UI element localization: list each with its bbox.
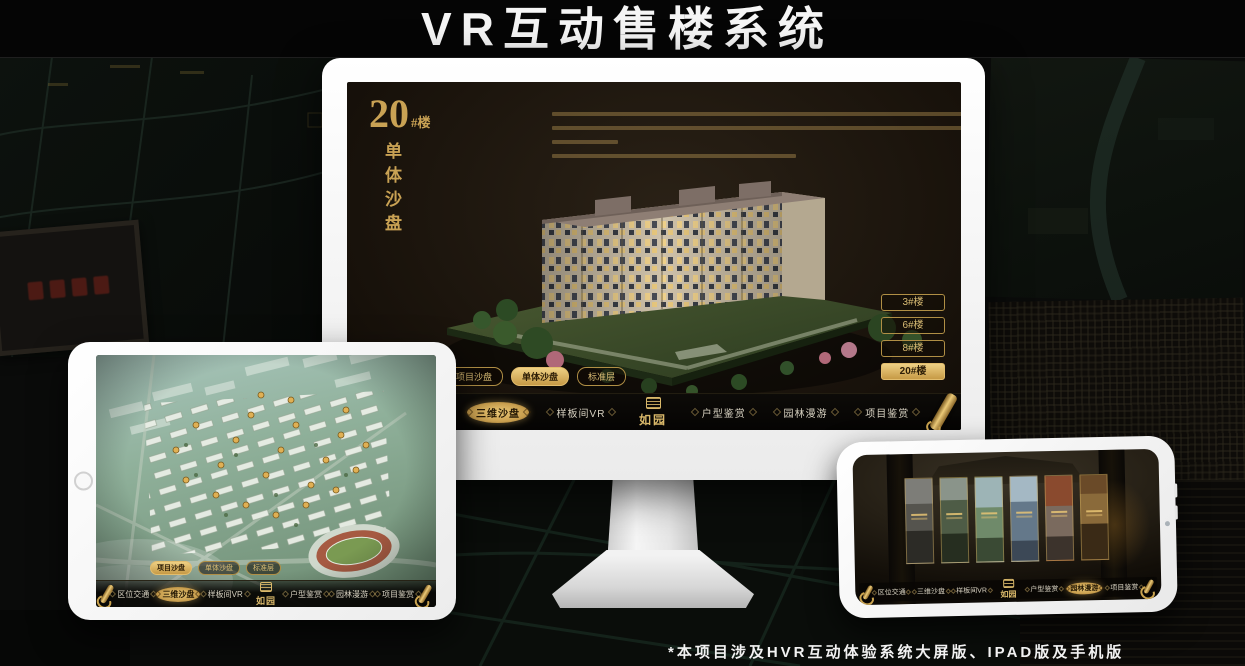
background-plaque [0, 220, 149, 357]
volume-button [1175, 505, 1178, 519]
brand-logo: 如园 [994, 579, 1022, 601]
nav-item[interactable]: 户型鉴赏 [284, 587, 328, 602]
subtab[interactable]: 单体沙盘 [511, 367, 569, 386]
footnote: *本项目涉及HVR互动体验系统大屏版、IPAD版及手机版 [668, 641, 1124, 662]
nav-item[interactable]: 样板间VR [548, 402, 615, 423]
logo-text: 如园 [1000, 589, 1016, 600]
subtab[interactable]: 项目沙盘 [150, 561, 192, 575]
nav-item[interactable]: 三维沙盘 [467, 402, 529, 423]
tablet-screen: 项目沙盘单体沙盘标准层 区位交通三维沙盘样板间VR 如园 户型鉴赏园林漫游项目鉴… [96, 355, 436, 607]
nav-group-right: 户型鉴赏园林漫游项目鉴赏 [1022, 581, 1146, 596]
background-river-curve [988, 58, 1245, 300]
seal-icon [260, 582, 272, 592]
page-title: VR互动售楼系统 [412, 6, 833, 52]
nav-item[interactable]: 区位交通 [874, 586, 910, 599]
phone-device: 区位交通三维沙盘样板间VR 如园 户型鉴赏园林漫游项目鉴赏 [836, 435, 1178, 618]
nav-item[interactable]: 项目鉴赏 [1106, 581, 1142, 594]
nav-item[interactable]: 样板间VR [952, 584, 991, 597]
nav-group-left: 区位交通三维沙盘样板间VR [110, 587, 250, 602]
nav-item[interactable]: 区位交通 [111, 587, 155, 602]
gallery-panel[interactable] [1009, 475, 1039, 562]
gallery-panel[interactable] [904, 478, 934, 565]
nav-group-right: 户型鉴赏园林漫游项目鉴赏 [673, 402, 938, 423]
brand-logo: 如园 [250, 582, 282, 607]
phone-screen: 区位交通三维沙盘样板间VR 如园 户型鉴赏园林漫游项目鉴赏 [852, 449, 1161, 605]
nav-item[interactable]: 项目鉴赏 [376, 587, 420, 602]
building-button[interactable]: 20#楼 [881, 363, 945, 380]
camera-icon [1165, 521, 1170, 526]
gallery-panels [904, 474, 1109, 564]
nav-group-right: 户型鉴赏园林漫游项目鉴赏 [282, 587, 422, 602]
nav-item[interactable]: 园林漫游 [330, 587, 374, 602]
nav-group-left: 区位交通三维沙盘样板间VR [870, 584, 994, 599]
subtab[interactable]: 标准层 [577, 367, 626, 386]
monitor-subtabs: 项目沙盘单体沙盘标准层 [445, 367, 626, 386]
building-button[interactable]: 6#楼 [881, 317, 945, 334]
stand-neck [607, 468, 699, 564]
tablet-subtabs: 项目沙盘单体沙盘标准层 [150, 561, 281, 575]
logo-text: 如园 [256, 594, 276, 607]
volume-button [1174, 483, 1177, 497]
subtab[interactable]: 单体沙盘 [198, 561, 240, 575]
logo-text: 如园 [639, 411, 667, 428]
home-button [74, 472, 93, 491]
nav-item[interactable]: 园林漫游 [775, 402, 837, 423]
building-selector: 3#楼6#楼8#楼20#楼 [881, 294, 945, 380]
nav-item[interactable]: 三维沙盘 [156, 587, 200, 602]
gallery-panel[interactable] [1044, 475, 1074, 562]
seal-icon [646, 397, 661, 409]
gallery-panel[interactable] [974, 476, 1004, 563]
title-band: VR互动售楼系统 [0, 0, 1245, 58]
gallery-panel[interactable] [1079, 474, 1109, 561]
nav-item[interactable]: 项目鉴赏 [856, 402, 918, 423]
seal-icon [1003, 579, 1014, 588]
tablet-navbar: 区位交通三维沙盘样板间VR 如园 户型鉴赏园林漫游项目鉴赏 [96, 580, 436, 607]
poster-canvas: VR互动售楼系统 20#楼 单体沙盘 [0, 0, 1245, 666]
nav-item[interactable]: 户型鉴赏 [693, 402, 755, 423]
gallery-panel[interactable] [939, 477, 969, 564]
nav-item[interactable]: 样板间VR [202, 587, 249, 602]
tablet-device: 项目沙盘单体沙盘标准层 区位交通三维沙盘样板间VR 如园 户型鉴赏园林漫游项目鉴… [68, 342, 456, 620]
brand-logo: 如园 [633, 397, 673, 428]
building-button[interactable]: 8#楼 [881, 340, 945, 357]
nav-item[interactable]: 三维沙盘 [913, 585, 949, 598]
nav-item[interactable]: 园林漫游 [1066, 582, 1102, 595]
nav-item[interactable]: 户型鉴赏 [1026, 582, 1062, 595]
subtab[interactable]: 标准层 [246, 561, 281, 575]
building-button[interactable]: 3#楼 [881, 294, 945, 311]
